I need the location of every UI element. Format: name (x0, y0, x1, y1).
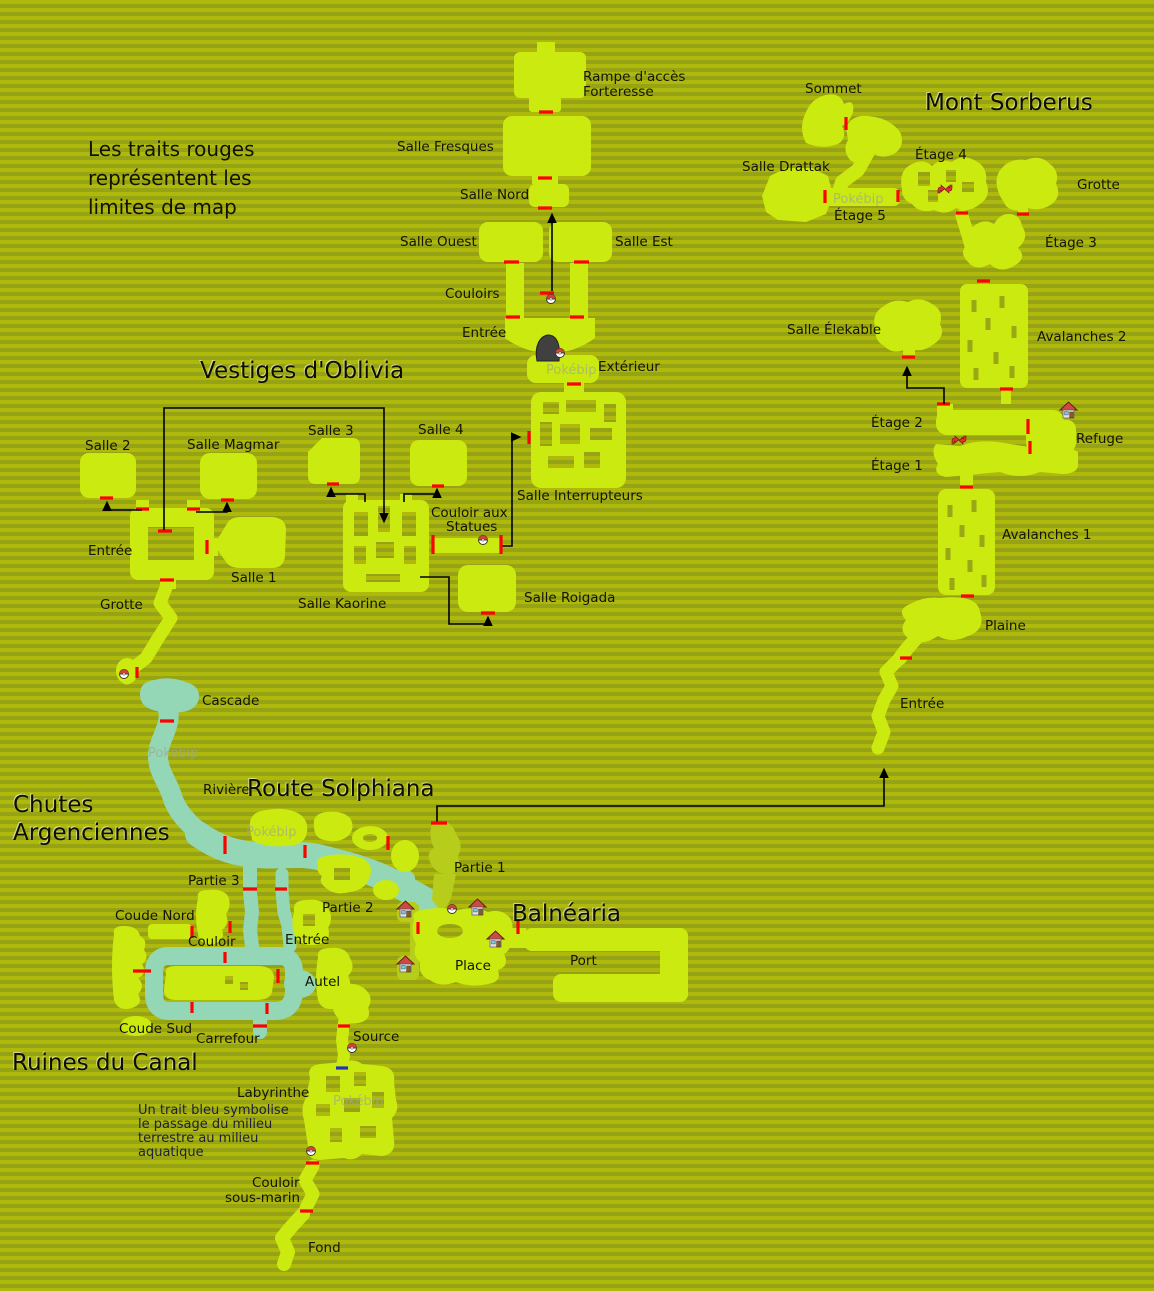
label-grotte-sorberus: Grotte (1077, 177, 1120, 193)
label-entree-sorberus: Entrée (900, 696, 944, 712)
label-salle-nord: Salle Nord (460, 187, 529, 203)
label-etage-2: Étage 2 (871, 414, 923, 431)
shape-couloir-sous-marin (305, 1166, 313, 1208)
label-salle-kaorine: Salle Kaorine (298, 596, 386, 612)
shape-etage4 (901, 157, 988, 212)
label-salle-1: Salle 1 (231, 570, 277, 586)
pokeball-icon (448, 905, 457, 914)
label-partie-3: Partie 3 (188, 873, 240, 889)
legend-red-note-line2: représentent les (88, 166, 252, 190)
label-coude-nord: Coude Nord (115, 908, 195, 924)
label-partie-1: Partie 1 (454, 860, 506, 876)
label-salle-4: Salle 4 (418, 422, 464, 438)
label-couloir-canal: Couloir (188, 934, 236, 950)
kaorine-stub-2 (400, 494, 412, 502)
label-avalanches-2: Avalanches 2 (1037, 329, 1126, 345)
pokeball-icon (307, 1147, 316, 1156)
label-etage-1: Étage 1 (871, 457, 923, 474)
label-plaine: Plaine (985, 618, 1026, 634)
region-title-chutes-2: Argenciennes (13, 820, 170, 846)
shape-salle-nord (529, 184, 569, 207)
region-title-sorberus: Mont Sorberus (925, 90, 1093, 116)
label-port: Port (570, 953, 597, 969)
label-fond: Fond (308, 1240, 341, 1256)
label-coude-sud: Coude Sud (119, 1021, 192, 1037)
legend-blue-note-line3: terrestre au milieu (138, 1131, 258, 1146)
label-labyrinthe: Labyrinthe (237, 1085, 309, 1101)
shape-grotte-sorberus (996, 158, 1058, 211)
pokeball-icon (556, 349, 565, 358)
watermark-text: Pokébip (246, 825, 297, 840)
label-couloirs: Couloirs (445, 286, 500, 302)
label-refuge: Refuge (1076, 431, 1123, 447)
canal-feed-merge (250, 892, 252, 946)
watermark-text: Pokébip (148, 746, 199, 761)
label-riviere: Rivière (203, 782, 250, 798)
shape-avalanches-2 (960, 284, 1028, 388)
label-couloir-statues-2: Statues (446, 519, 497, 535)
legend-blue-note-line2: le passage du milieu (138, 1117, 272, 1132)
partie3-hole (363, 834, 377, 842)
shape-partie3-blob-b (314, 812, 353, 842)
label-entree-forteresse: Entrée (462, 325, 506, 341)
label-partie-2: Partie 2 (322, 900, 374, 916)
shape-rampe-stem-bottom (529, 96, 561, 112)
label-carrefour: Carrefour (196, 1031, 260, 1047)
shape-refuge-arm (1026, 420, 1076, 452)
label-salle-elekable: Salle Élekable (787, 321, 881, 338)
label-exterieur: Extérieur (598, 359, 660, 375)
label-entree-vestiges: Entrée (88, 543, 132, 559)
kaorine-stub-1 (346, 494, 358, 502)
watermark-text: Pokébip (333, 1094, 384, 1109)
elekable-stem (903, 346, 915, 356)
shape-salle-fresques (503, 116, 591, 176)
label-couloir-sm-1: Couloir (252, 1175, 300, 1191)
shape-salle-roigada (458, 565, 516, 612)
shape-coude-nord-bar (148, 924, 192, 939)
label-place: Place (455, 958, 491, 974)
shape-partie1-bank (391, 840, 419, 872)
legend-blue-note-line1: Un trait bleu symbolise (138, 1103, 289, 1118)
shape-port-bridge (500, 928, 526, 948)
label-sommet: Sommet (805, 81, 862, 97)
shape-salle-est (549, 222, 612, 262)
pokeball-icon (120, 670, 129, 679)
legend-blue-note-line4: aquatique (138, 1145, 204, 1160)
label-rampe-acces-1: Rampe d'accès (583, 69, 685, 85)
label-etage-5: Étage 5 (834, 207, 886, 224)
label-autel: Autel (305, 974, 340, 990)
shape-source-path (342, 1022, 344, 1066)
label-grotte-vestiges: Grotte (100, 597, 143, 613)
label-salle-est: Salle Est (615, 234, 673, 250)
label-salle-roigada: Salle Roigada (524, 590, 615, 606)
shape-partie2-blob-b (373, 880, 399, 900)
legend-red-note-line3: limites de map (88, 195, 237, 219)
label-salle-magmar: Salle Magmar (187, 437, 280, 453)
label-etage-4: Étage 4 (915, 146, 967, 163)
shape-salle-4 (410, 440, 467, 486)
shape-salle-ouest (479, 222, 543, 262)
label-couloir-sm-2: sous-marin (225, 1190, 300, 1206)
shape-couloir-statues (432, 538, 502, 553)
label-salle-interrupteurs: Salle Interrupteurs (517, 488, 643, 504)
partie2-hole (334, 868, 350, 880)
watermark-text: Pokébip (833, 192, 884, 207)
shape-canal-island (164, 966, 274, 1000)
shape-rampe-block (514, 52, 586, 98)
label-rampe-acces-2: Forteresse (583, 84, 654, 100)
shape-salle-magmar (200, 453, 257, 499)
legend-red-note-line1: Les traits rouges (88, 137, 254, 161)
shape-port-bottom-bar (553, 974, 688, 1002)
label-entree-canal: Entrée (285, 932, 329, 948)
label-salle-drattak: Salle Drattak (742, 159, 830, 175)
label-salle-2: Salle 2 (85, 438, 131, 454)
label-source: Source (353, 1029, 399, 1045)
shape-couloir-west (506, 263, 524, 320)
game-world-map: Rampe d'accès Forteresse Salle Fresques … (0, 0, 1154, 1291)
shape-salle-2 (80, 453, 136, 498)
region-title-vestiges: Vestiges d'Oblivia (200, 358, 404, 384)
entree-canal-hole (303, 914, 315, 926)
label-avalanches-1: Avalanches 1 (1002, 527, 1091, 543)
pokeball-icon (479, 536, 488, 545)
shape-salle-elekable (874, 299, 942, 351)
label-salle-fresques: Salle Fresques (397, 139, 494, 155)
region-title-balnearia: Balnéaria (512, 901, 621, 927)
watermark-text: Pokébip (546, 363, 597, 378)
label-salle-ouest: Salle Ouest (400, 234, 477, 250)
pokeball-icon (547, 295, 556, 304)
region-title-ruines: Ruines du Canal (12, 1050, 198, 1076)
label-cascade: Cascade (202, 693, 259, 709)
plaza-hole (437, 924, 463, 938)
shape-couloir-east (570, 263, 588, 320)
shape-salle-drattak (762, 168, 833, 222)
label-salle-3: Salle 3 (308, 423, 354, 439)
label-etage-3: Étage 3 (1045, 234, 1097, 251)
region-title-route: Route Solphiana (247, 776, 434, 802)
shape-salle-3 (308, 438, 360, 484)
region-title-chutes-1: Chutes (13, 792, 93, 818)
